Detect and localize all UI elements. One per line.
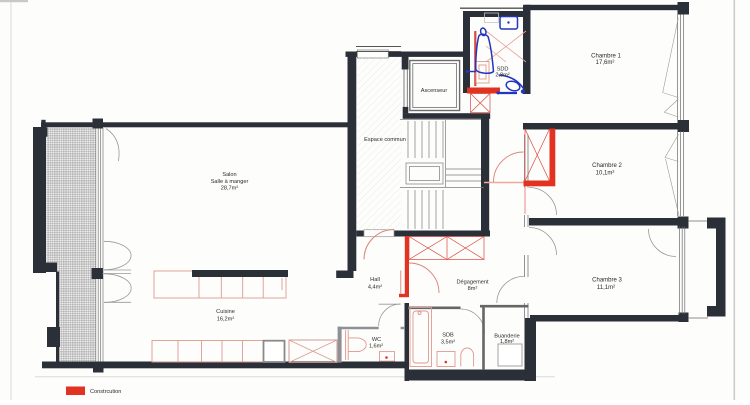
svg-text:WC: WC	[372, 337, 381, 343]
svg-text:SDB: SDB	[442, 333, 454, 339]
svg-text:11,1m²: 11,1m²	[597, 285, 615, 291]
svg-text:4,4m²: 4,4m²	[368, 285, 382, 291]
svg-text:Cuisine: Cuisine	[216, 309, 235, 315]
svg-text:8m²: 8m²	[468, 286, 478, 292]
svg-text:Salon: Salon	[222, 172, 236, 178]
svg-text:10,1m²: 10,1m²	[596, 170, 615, 176]
svg-text:28,7m²: 28,7m²	[221, 185, 239, 191]
svg-text:17,6m²: 17,6m²	[596, 60, 615, 66]
svg-text:1,6m²: 1,6m²	[369, 344, 383, 350]
svg-text:Dégagement: Dégagement	[456, 280, 488, 286]
svg-text:3,5m²: 3,5m²	[441, 340, 455, 346]
svg-text:Espace commun: Espace commun	[364, 137, 406, 143]
svg-text:SDD: SDD	[497, 66, 509, 72]
svg-text:Hall: Hall	[370, 277, 380, 283]
svg-text:1,8m²: 1,8m²	[500, 339, 514, 345]
svg-text:Chambre 3: Chambre 3	[592, 278, 622, 284]
svg-text:Ascenseur: Ascenseur	[421, 88, 448, 94]
svg-text:16,2m²: 16,2m²	[217, 317, 235, 323]
svg-text:2,8m²: 2,8m²	[495, 73, 509, 79]
svg-text:Constrcution: Constrcution	[90, 389, 121, 395]
svg-text:Chambre 1: Chambre 1	[591, 54, 621, 60]
svg-text:Chambre 2: Chambre 2	[592, 163, 622, 169]
svg-text:Salle à manger: Salle à manger	[211, 179, 249, 185]
